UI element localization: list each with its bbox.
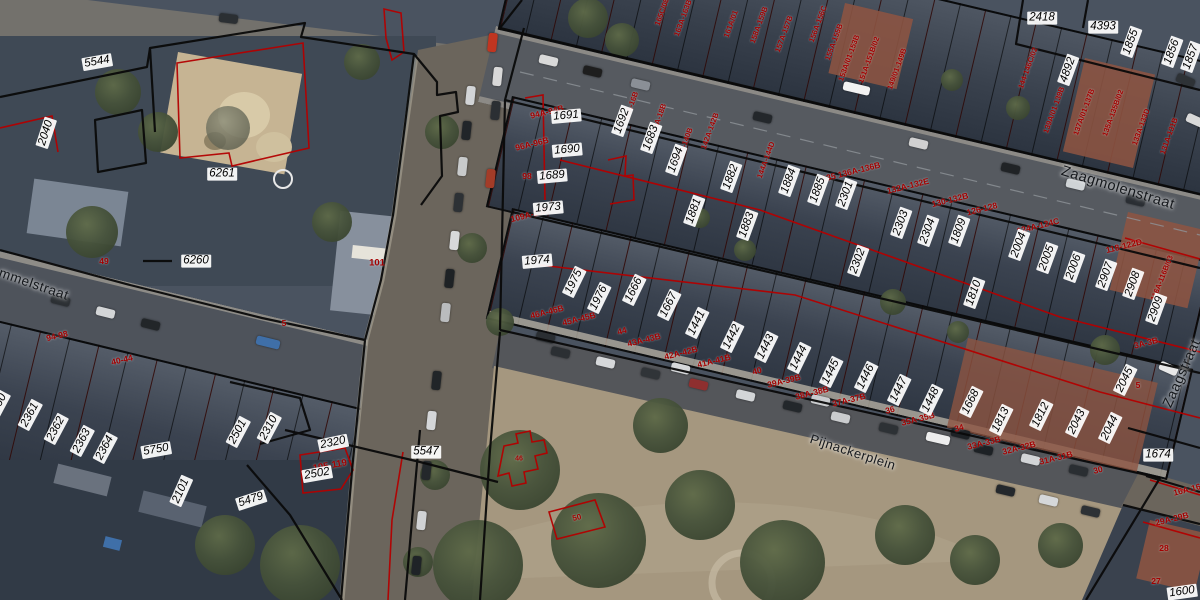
house-number-label: 156A-156C	[808, 5, 828, 44]
parcel-number-label: 2908	[1122, 268, 1144, 300]
house-number-label: 46	[515, 456, 523, 463]
house-number-label: 28	[1159, 544, 1168, 553]
house-number-label: 39A-39B	[766, 373, 801, 389]
house-number-label: 157A-157B	[774, 15, 794, 54]
house-number-label: 94-98	[45, 329, 68, 342]
parcel-number-label: 2043	[1065, 406, 1089, 438]
house-number-label: 5	[282, 319, 287, 328]
parcel-number-label: 1882	[720, 161, 742, 193]
house-number-label: 30	[1092, 465, 1103, 476]
house-number-label: 31A-31B	[1038, 450, 1073, 466]
parcel-number-label: 1667	[657, 289, 681, 321]
parcel-number-label: 5547	[411, 446, 441, 459]
parcel-number-label: 1856	[1161, 36, 1183, 68]
parcel-number-label: 1447	[887, 374, 911, 406]
parcel-number-label: 1683	[640, 122, 662, 154]
parcel-number-label: 1442	[720, 321, 744, 353]
parcel-number-label: 2045	[1113, 364, 1137, 396]
parcel-number-label: 2361	[17, 399, 42, 431]
parcel-number-label: 1809	[948, 215, 970, 247]
parcel-number-label: 2362	[43, 413, 68, 445]
parcel-number-label: 5750	[140, 441, 171, 459]
parcel-number-label: 1976	[587, 282, 611, 314]
house-number-label: 144-146C/02	[1017, 46, 1039, 89]
house-number-label: 33A-33B	[966, 435, 1001, 451]
parcel-number-label: 2501	[225, 416, 250, 448]
parcel-number-label: 2310	[256, 412, 281, 444]
house-number-label: 130-132B	[931, 191, 969, 208]
house-number-label: 149/01-149B	[886, 47, 908, 90]
parcel-number-label: 2004	[1008, 229, 1030, 261]
house-number-label: 46A-46B	[529, 304, 564, 320]
house-number-label: 135A-135B/02	[1101, 89, 1125, 137]
parcel-number-label: 1812	[1029, 399, 1053, 431]
parcel-number-label: 2302	[847, 245, 869, 277]
parcel-number-label: 1690	[552, 142, 583, 157]
parcel-number-label: 1666	[622, 274, 646, 306]
house-number-label: 49	[99, 257, 108, 266]
parcel-number-label: 1674	[1143, 449, 1173, 462]
parcel-number-label: 2006	[1063, 251, 1085, 283]
parcel-number-label: 1691	[551, 108, 582, 123]
parcel-number-label: 1883	[736, 209, 758, 241]
parcel-number-label: 2364	[92, 432, 117, 464]
parcel-number-label: 1689	[537, 168, 568, 183]
parcel-number-label: 5544	[81, 53, 112, 71]
house-number-label: 158A-159B	[749, 6, 769, 45]
parcel-number-label: 6260	[181, 255, 211, 268]
house-number-label: 44	[616, 326, 627, 337]
house-number-label: 40	[751, 366, 762, 377]
house-number-label: 3A-3B	[1133, 336, 1159, 350]
parcel-number-label: 1441	[685, 307, 709, 339]
parcel-number-label: 1694	[665, 144, 687, 176]
house-number-label: 42A-42B	[663, 345, 698, 361]
parcel-number-label: 2418	[1027, 12, 1057, 25]
house-number-label: 137A/01-137B	[1072, 88, 1096, 136]
house-number-label: 43A-43B	[626, 332, 661, 348]
house-number-label: 45A-45B	[561, 311, 596, 327]
parcel-number-label: 1443	[754, 331, 778, 363]
parcel-number-label: 1885	[807, 174, 829, 206]
parcel-number-label: 2040	[35, 117, 56, 149]
house-number-label: 41A-41B	[696, 353, 731, 369]
street-name-label: Zaagstraat	[1159, 336, 1200, 409]
house-number-label: 165C/08	[654, 0, 671, 27]
parcel-number-label: 2360	[0, 390, 11, 422]
parcel-number-label: 1668	[959, 386, 983, 418]
parcel-number-label: 1973	[533, 200, 564, 215]
house-number-label: 5	[1136, 381, 1141, 390]
parcel-number-label: 2363	[69, 425, 94, 457]
house-number-label: 155A-155B	[824, 23, 844, 62]
house-number-label: 163A-163B	[673, 0, 693, 37]
parcel-number-label: 1448	[919, 384, 943, 416]
house-number-label: 32A-32B	[1001, 440, 1036, 456]
parcel-number-label: 1600	[1166, 584, 1197, 600]
house-number-label: 126-128	[966, 201, 998, 217]
parcel-number-label: 2044	[1098, 412, 1122, 444]
cadastral-map-canvas[interactable]: 5544204062616260236023612362236323645750…	[0, 0, 1200, 600]
house-number-label: 142A-142B	[700, 112, 720, 151]
house-number-label: 98	[522, 172, 531, 181]
house-number-label: 131A-131B	[1159, 117, 1179, 156]
house-number-label: 16A-16B	[1172, 481, 1200, 497]
parcel-number-label: 4892	[1057, 54, 1079, 86]
house-number-label: 36	[884, 405, 895, 416]
parcel-number-label: 2303	[890, 207, 912, 239]
house-number-label: 37A-37B	[831, 392, 866, 408]
parcel-number-label: 5479	[235, 489, 267, 510]
house-number-label: 101	[369, 258, 385, 268]
parcel-number-label: 1810	[963, 277, 985, 309]
house-number-label: 161A/01	[723, 9, 740, 38]
house-number-label: 133A-133D	[1131, 108, 1151, 147]
parcel-number-label: 1884	[778, 165, 800, 197]
parcel-number-label: 2101	[169, 475, 193, 507]
parcel-number-label: 1974	[522, 253, 553, 268]
parcel-number-label: 1813	[989, 404, 1013, 436]
parcel-number-label: 1975	[562, 266, 586, 298]
house-number-label: 96A-96B	[514, 136, 549, 152]
house-number-label: 50	[572, 513, 583, 523]
house-number-label: 38A-38B	[794, 385, 829, 401]
house-number-label: 27	[1151, 577, 1160, 586]
house-number-label: 118-122D	[1105, 237, 1143, 254]
parcel-number-label: 1444	[787, 342, 811, 374]
house-number-label: 29A-29B	[1154, 511, 1189, 527]
street-name-label: mmelstraat	[0, 265, 71, 303]
parcel-number-label: 2502	[301, 465, 332, 483]
street-name-label: Zaagmolenstraat	[1059, 163, 1176, 213]
parcel-number-label: 1881	[683, 195, 705, 227]
parcel-number-label: 4393	[1088, 21, 1118, 34]
parcel-number-label: 2301	[835, 178, 857, 210]
parcel-number-label: 2304	[917, 215, 939, 247]
street-name-label: Pijnackerplein	[808, 431, 898, 473]
house-number-label: 139A/01-139B	[1042, 86, 1066, 134]
parcel-number-label: 1446	[854, 361, 878, 393]
parcel-number-label: 1857	[1180, 41, 1200, 73]
parcel-number-label: 6261	[207, 168, 237, 181]
house-number-label: 132A-132E	[886, 177, 930, 196]
parcel-number-label: 1855	[1120, 26, 1142, 58]
map-labels-layer: 5544204062616260236023612362236323645750…	[0, 0, 1200, 600]
house-number-label: 34	[953, 423, 964, 434]
parcel-number-label: 2320	[317, 434, 349, 453]
house-number-label: 144A-144D	[756, 141, 776, 180]
parcel-number-label: 2907	[1095, 259, 1117, 291]
parcel-number-label: 2005	[1036, 242, 1058, 274]
house-number-label: 40-44	[110, 353, 133, 366]
parcel-number-label: 1445	[819, 356, 843, 388]
house-number-label: 151A-151B/02	[857, 36, 881, 84]
